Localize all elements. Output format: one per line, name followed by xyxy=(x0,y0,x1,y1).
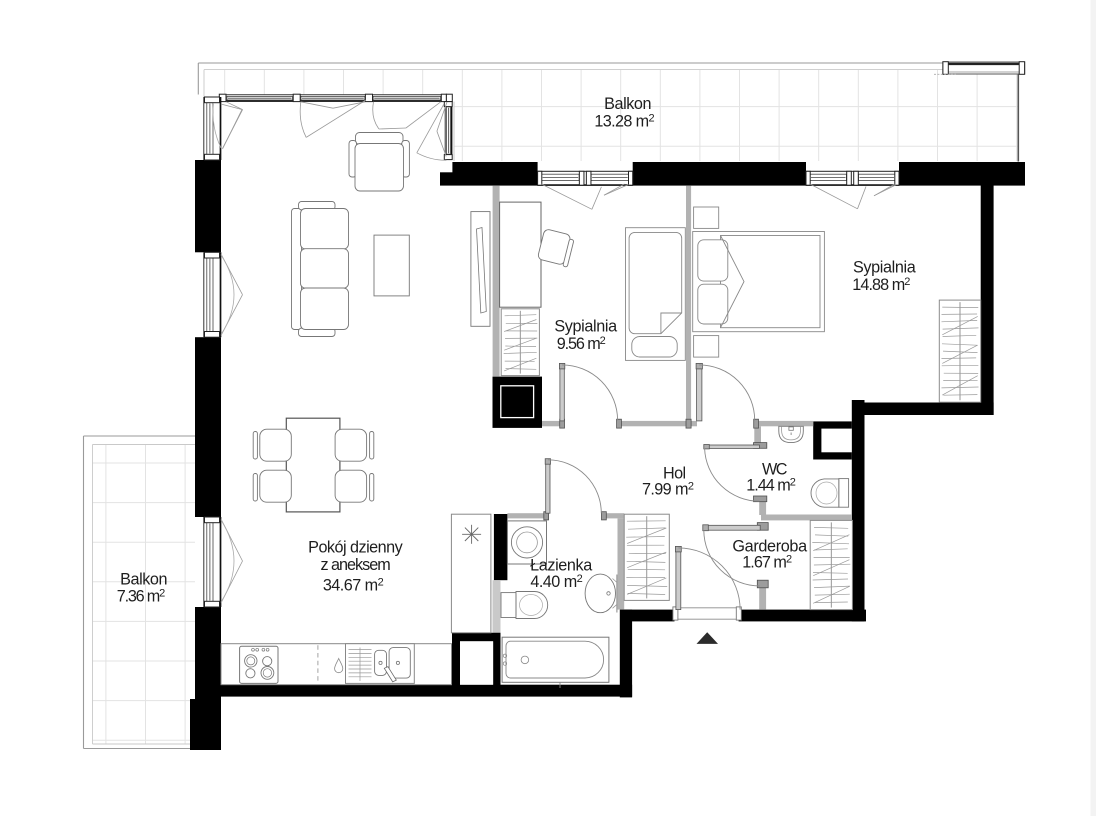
svg-text:7.36 m2: 7.36 m2 xyxy=(117,588,165,606)
svg-text:WC: WC xyxy=(762,460,788,478)
svg-text:14.88 m2: 14.88 m2 xyxy=(852,276,910,294)
svg-text:4.40 m2: 4.40 m2 xyxy=(530,573,582,591)
svg-text:Balkon: Balkon xyxy=(120,570,167,588)
svg-text:1.67 m2: 1.67 m2 xyxy=(742,554,792,572)
svg-text:13.28 m2: 13.28 m2 xyxy=(594,112,654,130)
svg-text:Sypialnia: Sypialnia xyxy=(554,318,617,336)
svg-text:Sypialnia: Sypialnia xyxy=(853,259,916,277)
svg-text:34.67 m2: 34.67 m2 xyxy=(323,576,384,594)
svg-text:z aneksem: z aneksem xyxy=(320,556,390,574)
svg-text:1.44 m2: 1.44 m2 xyxy=(746,477,796,495)
svg-text:Łazienka: Łazienka xyxy=(530,556,592,574)
svg-text:Pokój dzienny: Pokój dzienny xyxy=(308,539,403,557)
svg-text:Balkon: Balkon xyxy=(604,95,651,113)
svg-text:9.56 m2: 9.56 m2 xyxy=(557,335,606,353)
svg-text:7.99 m2: 7.99 m2 xyxy=(642,481,694,499)
